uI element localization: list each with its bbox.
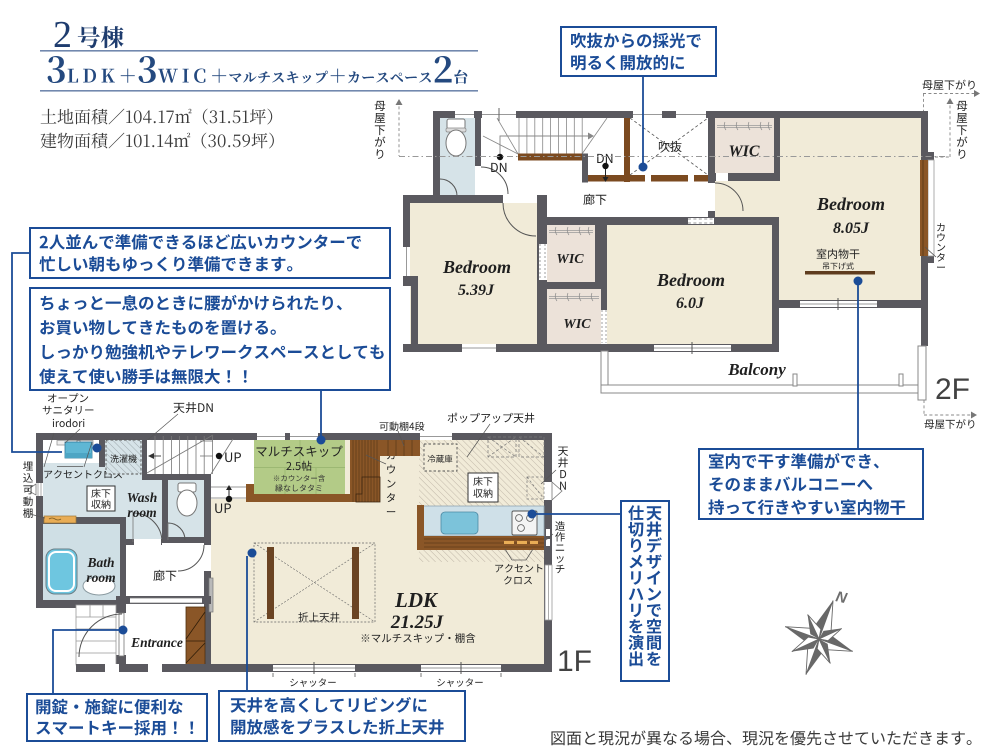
svg-text:2F: 2F <box>935 373 970 406</box>
svg-text:Bedroom: Bedroom <box>816 194 885 214</box>
svg-text:Wash: Wash <box>127 490 158 505</box>
svg-text:room: room <box>86 570 115 585</box>
svg-text:8.05J: 8.05J <box>833 220 870 237</box>
svg-text:LDK: LDK <box>394 588 439 612</box>
svg-text:2: 2 <box>53 14 72 56</box>
svg-text:WIC: WIC <box>556 252 584 267</box>
svg-text:room: room <box>127 505 156 520</box>
svg-text:Entrance: Entrance <box>130 635 183 650</box>
svg-text:21.25J: 21.25J <box>390 612 444 633</box>
svg-text:Balcony: Balcony <box>727 360 786 379</box>
svg-text:Bedroom: Bedroom <box>656 270 725 290</box>
svg-text:WIC: WIC <box>728 143 759 160</box>
svg-text:Bedroom: Bedroom <box>442 257 511 277</box>
svg-text:6.0J: 6.0J <box>676 295 705 312</box>
svg-text:N: N <box>834 588 849 607</box>
svg-text:1F: 1F <box>557 645 592 678</box>
svg-text:Bath: Bath <box>86 555 114 570</box>
svg-text:WIC: WIC <box>563 317 591 332</box>
svg-text:5.39J: 5.39J <box>458 282 495 299</box>
